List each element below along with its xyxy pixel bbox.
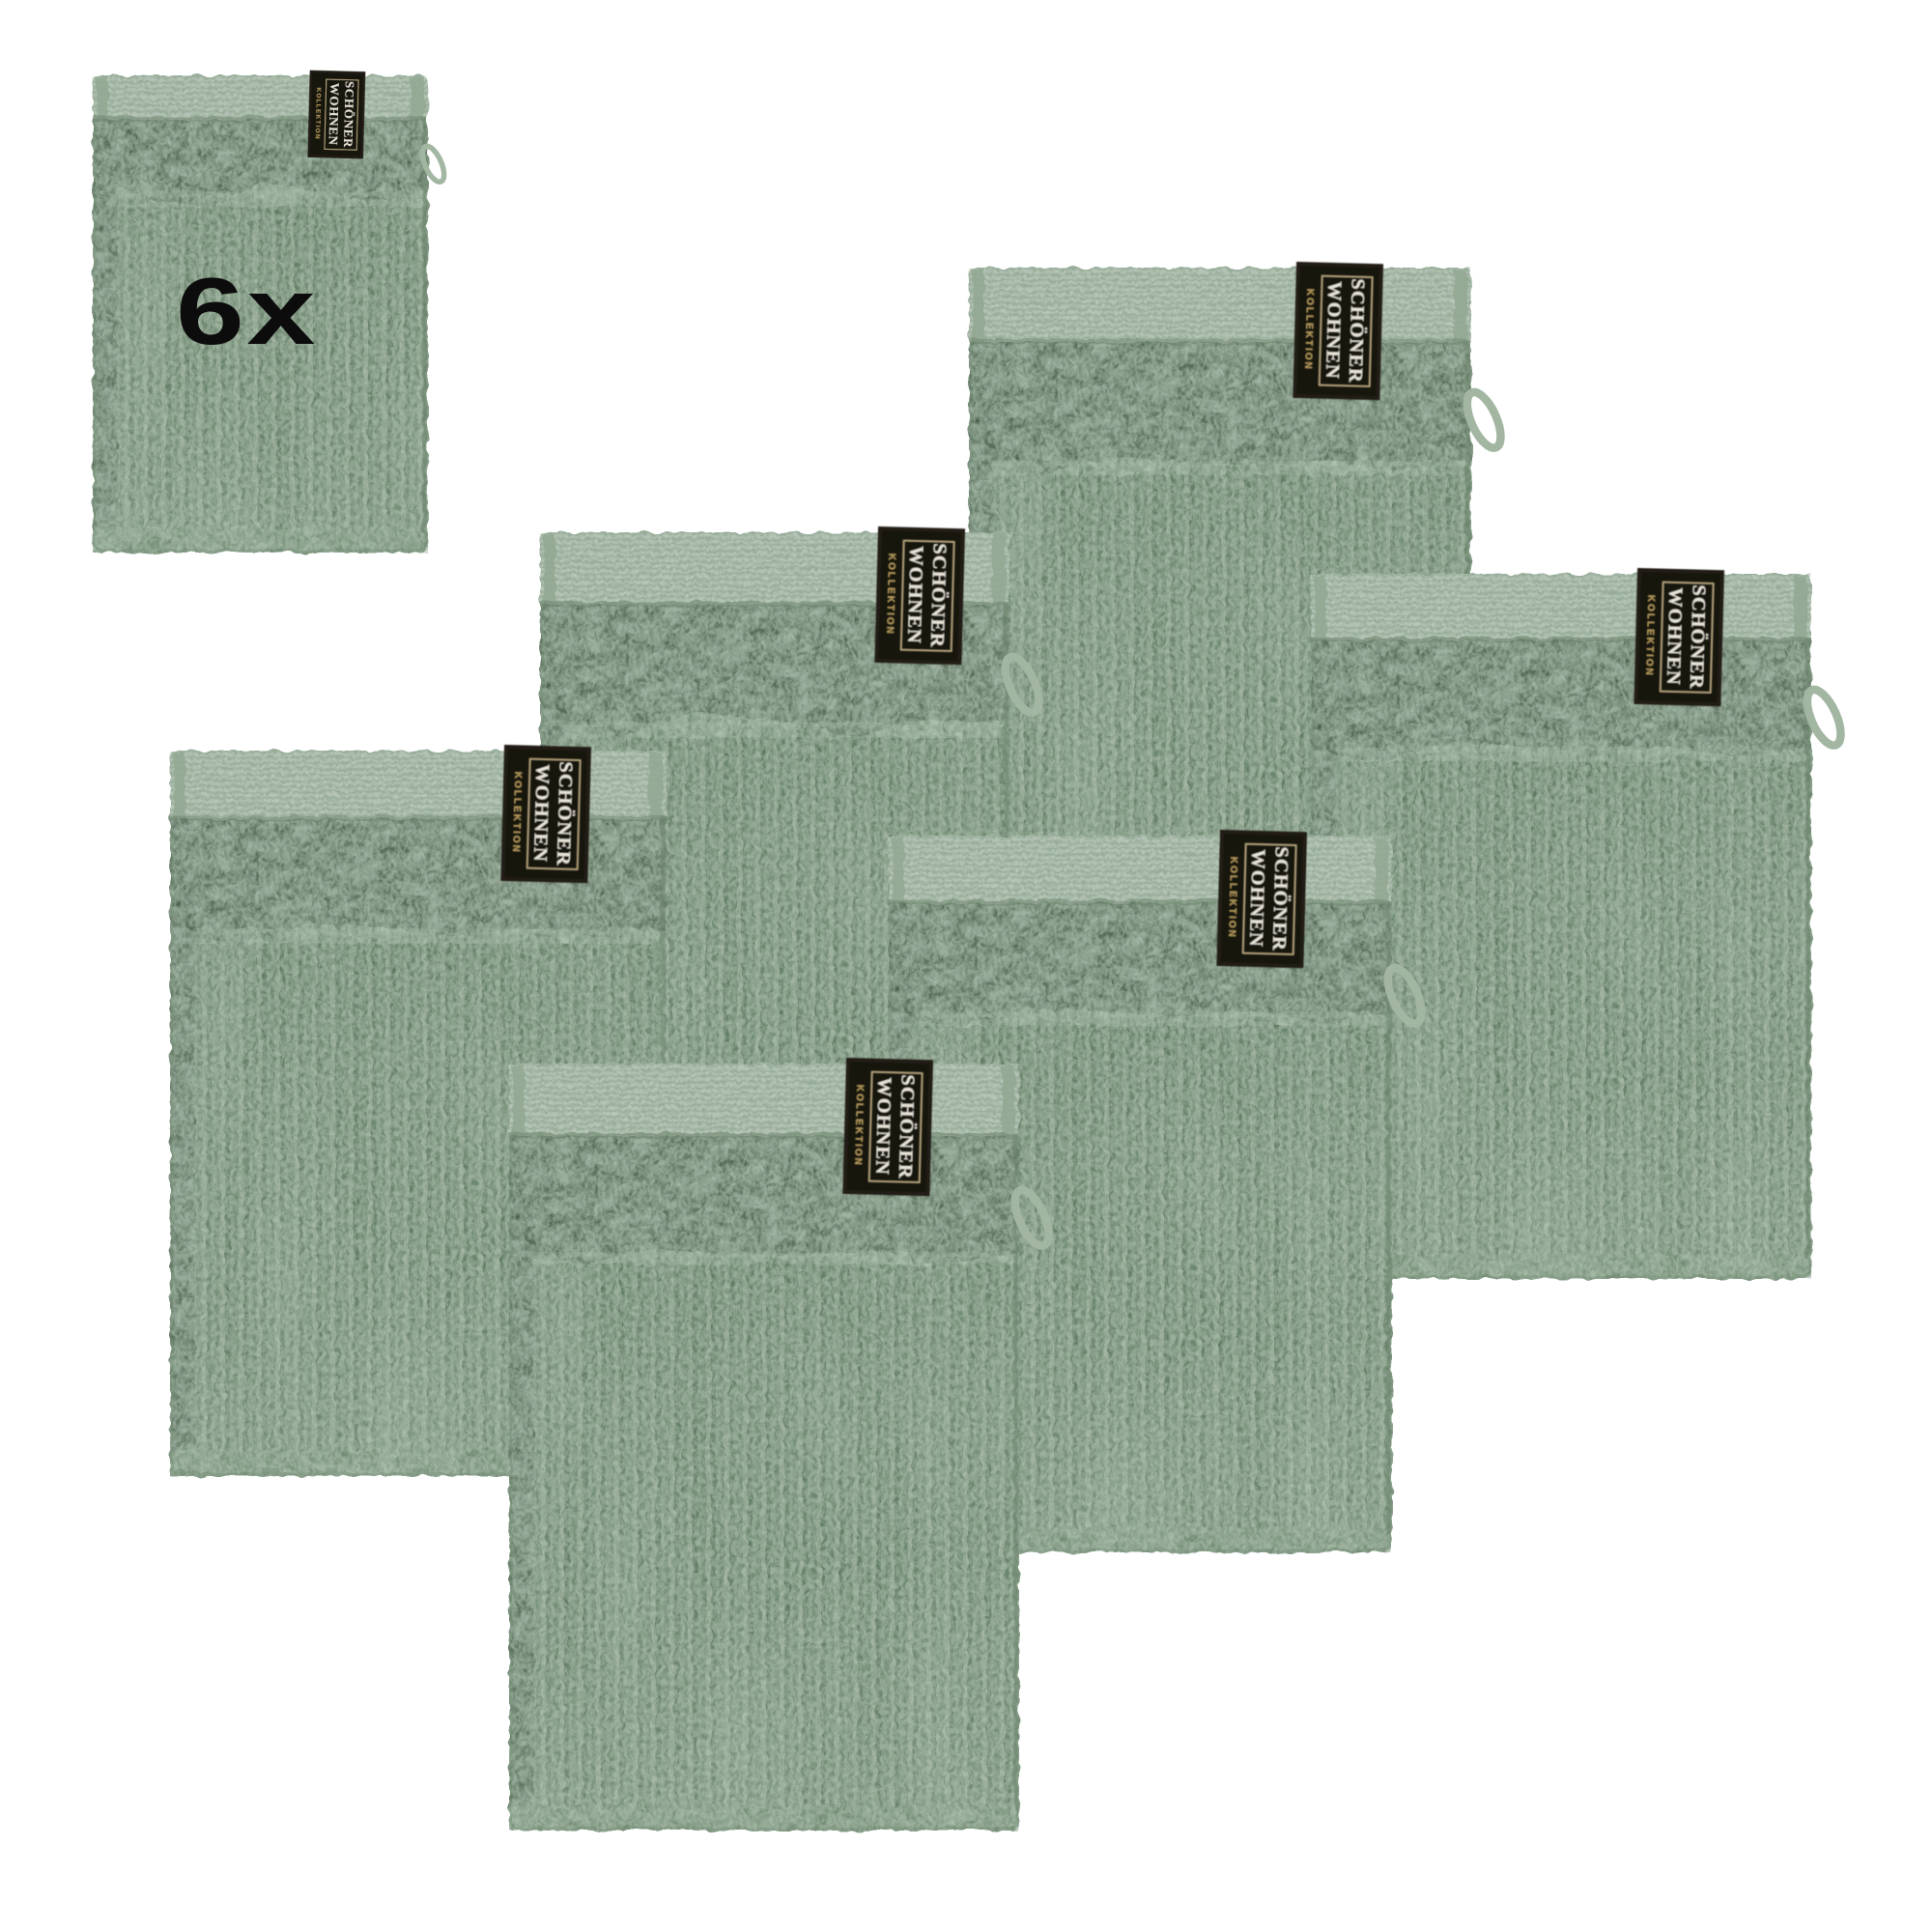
svg-text:WOHNEN: WOHNEN <box>903 546 927 644</box>
svg-text:KOLLEKTION: KOLLEKTION <box>884 554 896 636</box>
svg-text:KOLLEKTION: KOLLEKTION <box>1226 857 1238 939</box>
svg-text:6x: 6x <box>176 259 318 365</box>
svg-text:SCHÖNER: SCHÖNER <box>895 1074 920 1179</box>
svg-text:KOLLEKTION: KOLLEKTION <box>1643 595 1656 677</box>
svg-text:SCHÖNER: SCHÖNER <box>1268 846 1293 952</box>
svg-text:SCHÖNER: SCHÖNER <box>1345 278 1370 384</box>
svg-text:WOHNEN: WOHNEN <box>1245 849 1269 948</box>
svg-text:WOHNEN: WOHNEN <box>529 764 554 863</box>
svg-text:KOLLEKTION: KOLLEKTION <box>1302 289 1315 371</box>
svg-text:KOLLEKTION: KOLLEKTION <box>314 87 322 140</box>
svg-text:SCHÖNER: SCHÖNER <box>341 81 357 149</box>
svg-text:WOHNEN: WOHNEN <box>1662 587 1687 686</box>
svg-text:SCHÖNER: SCHÖNER <box>553 761 578 867</box>
svg-text:KOLLEKTION: KOLLEKTION <box>852 1085 865 1167</box>
svg-text:SCHÖNER: SCHÖNER <box>1686 584 1711 690</box>
svg-text:WOHNEN: WOHNEN <box>1321 281 1346 380</box>
svg-text:WOHNEN: WOHNEN <box>871 1077 895 1176</box>
svg-text:KOLLEKTION: KOLLEKTION <box>510 772 523 854</box>
svg-text:WOHNEN: WOHNEN <box>326 82 342 145</box>
svg-text:SCHÖNER: SCHÖNER <box>926 543 952 648</box>
